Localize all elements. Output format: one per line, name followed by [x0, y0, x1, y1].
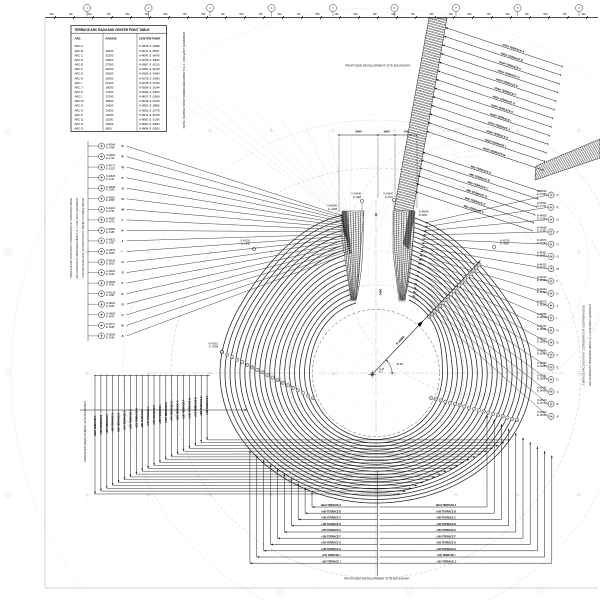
- svg-text:8000: 8000: [106, 127, 113, 131]
- svg-text:E 4098: E 4098: [353, 196, 362, 199]
- svg-text:E: E: [122, 292, 124, 296]
- svg-text:540: 540: [202, 13, 207, 16]
- svg-text:N 43054, E -25144: N 43054, E -25144: [139, 85, 160, 89]
- svg-text:E 17150: E 17150: [537, 242, 547, 245]
- svg-text:700: 700: [259, 13, 264, 16]
- svg-text:15000: 15000: [106, 99, 114, 103]
- svg-text:E -4984: E -4984: [500, 243, 509, 246]
- svg-text:N 43158, E -40468: N 43158, E -40468: [139, 44, 160, 48]
- svg-text:540: 540: [316, 13, 321, 16]
- svg-text:540: 540: [430, 13, 435, 16]
- svg-text:700: 700: [69, 13, 74, 16]
- svg-text:N 41807, E -31210: N 41807, E -31210: [139, 63, 160, 67]
- svg-text:E 14532: E 14532: [537, 414, 547, 417]
- svg-text:N 46051, E -20094: N 46051, E -20094: [139, 122, 160, 126]
- svg-text:700: 700: [373, 13, 378, 16]
- svg-text:B: B: [557, 402, 559, 406]
- svg-text:P: P: [122, 176, 124, 180]
- svg-text:E -5085: E -5085: [106, 326, 115, 329]
- svg-text:+175 TERRACE N: +175 TERRACE N: [171, 401, 174, 421]
- svg-text:ARC I: ARC I: [75, 81, 83, 85]
- svg-text:N 45418, E -21310: N 45418, E -21310: [139, 99, 160, 103]
- svg-text:E -3608: E -3608: [106, 252, 115, 255]
- svg-text:N 42276, E -27830: N 42276, E -27830: [139, 76, 160, 80]
- svg-text:+450 TERRACE C: +450 TERRACE C: [321, 517, 341, 520]
- svg-text:MID TERRACE E: MID TERRACE E: [118, 412, 121, 431]
- svg-text:14000: 14000: [106, 104, 114, 108]
- svg-text:+325 TERRACE H: +325 TERRACE H: [135, 408, 138, 428]
- svg-text:PROPOSED DEVELOPMENT SITE BOUN: PROPOSED DEVELOPMENT SITE BOUNDARY: [83, 401, 87, 462]
- svg-text:E -2498: E -2498: [241, 243, 250, 246]
- svg-text:25000: 25000: [106, 72, 114, 76]
- svg-text:E -2764: E -2764: [106, 210, 115, 213]
- svg-text:+500 TERRACE B: +500 TERRACE B: [321, 511, 341, 514]
- svg-text:N 44617, E -23008: N 44617, E -23008: [139, 95, 160, 99]
- svg-text:540: 540: [354, 13, 359, 16]
- svg-text:N: N: [557, 255, 559, 259]
- svg-text:E -1709: E -1709: [106, 157, 115, 160]
- svg-text:+125 TERRACE P: +125 TERRACE P: [183, 399, 186, 419]
- svg-text:+050 TERRACE S: +050 TERRACE S: [200, 396, 203, 416]
- svg-text:E -3186: E -3186: [106, 231, 115, 234]
- svg-text:HIGH TERRACE A: HIGH TERRACE A: [94, 415, 97, 436]
- svg-text:E -4452: E -4452: [106, 294, 115, 297]
- svg-text:L: L: [122, 218, 124, 222]
- svg-text:ARC H: ARC H: [75, 76, 84, 80]
- svg-text:N: N: [122, 197, 124, 201]
- svg-text:E -3397: E -3397: [106, 241, 115, 244]
- svg-text:700: 700: [487, 13, 492, 16]
- svg-text:E 16028: E 16028: [537, 316, 547, 319]
- svg-text:540: 540: [392, 13, 397, 16]
- svg-text:E -4663: E -4663: [106, 305, 115, 308]
- svg-text:ARC M: ARC M: [75, 99, 85, 103]
- svg-text:N 46694, E -20203: N 46694, E -20203: [139, 127, 160, 131]
- svg-text:S: S: [122, 144, 124, 148]
- svg-text:H: H: [122, 260, 124, 264]
- svg-text:700: 700: [449, 13, 454, 16]
- svg-text:E 2347: E 2347: [385, 196, 394, 199]
- svg-text:ARC Q: ARC Q: [75, 118, 85, 122]
- svg-text:H: H: [557, 328, 559, 332]
- svg-text:N 44047, E -36478: N 44047, E -36478: [139, 53, 160, 57]
- svg-text:E -3819: E -3819: [106, 263, 115, 266]
- svg-text:TERRACE ARC END POINT COORDINA: TERRACE ARC END POINT COORDINATES AT SOU…: [582, 305, 586, 385]
- svg-text:E -2553: E -2553: [106, 199, 115, 202]
- svg-text:1400: 1400: [383, 130, 390, 134]
- svg-text:RADIUS: RADIUS: [106, 37, 117, 41]
- svg-text:F: F: [557, 353, 559, 357]
- svg-text:ARC J: ARC J: [75, 85, 84, 89]
- svg-text:700: 700: [563, 13, 568, 16]
- svg-text:E -9088: E -9088: [209, 346, 218, 349]
- svg-text:+450 TERRACE C: +450 TERRACE C: [106, 414, 109, 434]
- svg-text:A: A: [7, 371, 9, 375]
- svg-text:13000: 13000: [106, 108, 114, 112]
- svg-text:N 45631, E -22778: N 45631, E -22778: [139, 108, 160, 112]
- svg-text:540: 540: [506, 13, 511, 16]
- svg-text:ARC B: ARC B: [75, 49, 84, 53]
- svg-text:TERRACE ARC END POINT COORDINA: TERRACE ARC END POINT COORDINATES AT NOR…: [69, 198, 73, 278]
- svg-text:+400 TERRACE D: +400 TERRACE D: [436, 523, 456, 526]
- svg-text:ARC G: ARC G: [75, 72, 84, 76]
- svg-text:E -5296: E -5296: [106, 336, 115, 339]
- svg-text:ARC C: ARC C: [75, 53, 84, 57]
- svg-text:+150 TERRACE I: +150 TERRACE I: [322, 554, 341, 557]
- svg-text:700: 700: [411, 13, 416, 16]
- svg-text:NOTE: CENTER POINTS MIRRORED A: NOTE: CENTER POINTS MIRRORED ABOUT CL 1,…: [182, 31, 186, 128]
- svg-text:+375 TERRACE F: +375 TERRACE F: [124, 410, 127, 430]
- svg-text:FOR ARC RADII AND CENTER POINT: FOR ARC RADII AND CENTER POINTS, REFER T…: [81, 198, 85, 278]
- svg-text:ARC F: ARC F: [75, 67, 84, 71]
- svg-text:540: 540: [240, 13, 245, 16]
- svg-text:700: 700: [525, 13, 530, 16]
- svg-text:E -2342: E -2342: [106, 189, 115, 192]
- svg-text:27900: 27900: [106, 63, 114, 67]
- svg-text:ARC R: ARC R: [75, 122, 84, 126]
- svg-text:CENTER POINT: CENTER POINT: [139, 37, 161, 41]
- svg-text:A: A: [7, 129, 9, 133]
- svg-text:HIGH TERRACE A: HIGH TERRACE A: [321, 504, 342, 507]
- svg-text:32000: 32000: [106, 49, 114, 53]
- svg-text:N 45821, E -19906: N 45821, E -19906: [139, 104, 160, 108]
- svg-text:ARC O: ARC O: [75, 108, 85, 112]
- svg-text:+200 TERRACE H: +200 TERRACE H: [321, 548, 341, 551]
- svg-text:+450 TERRACE C: +450 TERRACE C: [436, 517, 456, 520]
- svg-text:N 41766, E -34620: N 41766, E -34620: [139, 58, 160, 62]
- svg-text:23000: 23000: [106, 76, 114, 80]
- svg-text:700: 700: [335, 13, 340, 16]
- svg-text:ARC N: ARC N: [75, 104, 84, 108]
- svg-text:ARC: ARC: [75, 37, 82, 41]
- svg-text:E -4030: E -4030: [106, 273, 115, 276]
- svg-text:HIGH TERRACE A: HIGH TERRACE A: [436, 504, 457, 507]
- svg-text:PROPOSED DEVELOPMENT SITE BOUN: PROPOSED DEVELOPMENT SITE BOUNDARY: [345, 64, 411, 68]
- svg-text:F: F: [122, 281, 124, 285]
- svg-text:LOW TERRACE M: LOW TERRACE M: [165, 402, 168, 422]
- svg-text:46.36°: 46.36°: [396, 362, 404, 366]
- svg-text:+225 TERRACE L: +225 TERRACE L: [159, 404, 162, 424]
- svg-text:3400: 3400: [355, 130, 362, 134]
- svg-text:ARC A: ARC A: [75, 44, 84, 48]
- svg-text:MID TERRACE I: MID TERRACE I: [141, 409, 144, 427]
- svg-text:29000: 29000: [106, 58, 114, 62]
- svg-text:+300 TERRACE F: +300 TERRACE F: [321, 536, 341, 539]
- svg-text:540: 540: [164, 13, 169, 16]
- svg-text:+300 TERRACE F: +300 TERRACE F: [436, 536, 456, 539]
- svg-text:E 4089: E 4089: [419, 214, 428, 217]
- svg-text:17000: 17000: [106, 95, 114, 99]
- svg-text:+350 TERRACE G: +350 TERRACE G: [129, 409, 132, 429]
- svg-text:+250 TERRACE G: +250 TERRACE G: [321, 542, 341, 545]
- svg-text:540: 540: [544, 13, 549, 16]
- svg-text:+350 TERRACE E: +350 TERRACE E: [436, 529, 456, 532]
- svg-text:E -4874: E -4874: [106, 315, 115, 318]
- svg-text:E -2975: E -2975: [106, 220, 115, 223]
- svg-text:+150 TERRACE I: +150 TERRACE I: [437, 554, 456, 557]
- svg-text:J: J: [453, 291, 454, 293]
- svg-text:+500 TERRACE B: +500 TERRACE B: [436, 511, 456, 514]
- svg-text:E 15467: E 15467: [537, 353, 547, 356]
- svg-text:21300: 21300: [106, 81, 114, 85]
- svg-text:P: P: [557, 230, 559, 234]
- svg-text:ARC E: ARC E: [75, 63, 84, 67]
- svg-text:700: 700: [221, 13, 226, 16]
- svg-text:E 15654: E 15654: [537, 340, 547, 343]
- svg-text:N 42376, E -27020: N 42376, E -27020: [139, 81, 160, 85]
- svg-text:+150 TERRACE O: +150 TERRACE O: [177, 400, 180, 420]
- svg-text:ARC ENDPOINTS MIRRORED ABOUT C: ARC ENDPOINTS MIRRORED ABOUT CL 1, FOR W…: [588, 304, 592, 387]
- svg-text:540: 540: [50, 13, 55, 16]
- svg-text:PROPOSED DEVELOPMENT SITE BOUN: PROPOSED DEVELOPMENT SITE BOUNDARY: [344, 577, 410, 581]
- svg-text:10000: 10000: [106, 122, 114, 126]
- svg-text:540: 540: [278, 13, 283, 16]
- svg-text:J: J: [474, 409, 475, 411]
- svg-text:N 42006, E -29464: N 42006, E -29464: [139, 72, 160, 76]
- svg-text:N 44094, E -24570: N 44094, E -24570: [139, 90, 160, 94]
- svg-text:N 46131, E -23178: N 46131, E -23178: [139, 113, 160, 117]
- svg-text:+275 TERRACE J: +275 TERRACE J: [147, 406, 150, 426]
- svg-text:E -1920: E -1920: [106, 168, 115, 171]
- svg-text:700: 700: [107, 13, 112, 16]
- svg-text:540: 540: [582, 13, 587, 16]
- svg-text:N 43717, E -38117: N 43717, E -38117: [139, 49, 160, 53]
- svg-text:E 15841: E 15841: [537, 328, 547, 331]
- svg-text:N 46067, E -21306: N 46067, E -21306: [139, 118, 160, 122]
- svg-text:19000: 19000: [106, 85, 114, 89]
- svg-text:+025 TERRACE T: +025 TERRACE T: [206, 395, 209, 415]
- svg-text:ARC S: ARC S: [75, 127, 84, 131]
- svg-text:17900: 17900: [106, 90, 114, 94]
- svg-text:12000: 12000: [106, 113, 114, 117]
- svg-text:11000: 11000: [106, 118, 114, 122]
- svg-text:LOW TERRACE Q: LOW TERRACE Q: [188, 398, 191, 418]
- svg-text:ARC L: ARC L: [75, 95, 84, 99]
- svg-text:E -2498: E -2498: [328, 208, 337, 211]
- svg-text:+250 TERRACE G: +250 TERRACE G: [436, 542, 456, 545]
- svg-text:700: 700: [297, 13, 302, 16]
- svg-text:ARC P: ARC P: [75, 113, 84, 117]
- svg-text:E -2131: E -2131: [106, 178, 115, 181]
- svg-text:N 41681, E -31218: N 41681, E -31218: [139, 67, 160, 71]
- svg-text:ARC D: ARC D: [75, 58, 84, 62]
- svg-text:3400: 3400: [379, 288, 383, 295]
- svg-text:540: 540: [468, 13, 473, 16]
- svg-text:E -1498: E -1498: [106, 147, 115, 150]
- svg-text:J: J: [267, 375, 268, 377]
- svg-text:700: 700: [404, 130, 409, 134]
- svg-text:+500 TERRACE B: +500 TERRACE B: [100, 415, 103, 435]
- svg-text:E -4241: E -4241: [106, 284, 115, 287]
- svg-text:K: K: [557, 292, 559, 296]
- svg-text:+350 TERRACE E: +350 TERRACE E: [321, 529, 341, 532]
- svg-text:31300: 31300: [106, 53, 114, 57]
- svg-text:700: 700: [183, 13, 188, 16]
- svg-text:A: A: [7, 492, 9, 496]
- svg-text:+425 TERRACE D: +425 TERRACE D: [112, 412, 115, 432]
- svg-text:ARC ENDPOINTS MIRRORED ABOUT C: ARC ENDPOINTS MIRRORED ABOUT CL 1, FOR E…: [75, 197, 79, 279]
- svg-text:+250 TERRACE K: +250 TERRACE K: [153, 405, 156, 425]
- svg-text:+200 TERRACE H: +200 TERRACE H: [436, 548, 456, 551]
- svg-text:ARC K: ARC K: [75, 90, 84, 94]
- svg-text:540: 540: [126, 13, 131, 16]
- svg-text:TERRACE ARC RADII AND CENTER P: TERRACE ARC RADII AND CENTER POINT TABLE: [75, 28, 150, 32]
- svg-text:+100 TERRACE J: +100 TERRACE J: [436, 561, 456, 564]
- svg-text:+400 TERRACE D: +400 TERRACE D: [321, 523, 341, 526]
- svg-text:E: E: [557, 365, 559, 369]
- svg-text:+100 TERRACE J: +100 TERRACE J: [321, 561, 341, 564]
- svg-text:+075 TERRACE R: +075 TERRACE R: [194, 397, 197, 417]
- svg-text:540: 540: [88, 13, 93, 16]
- svg-text:N 45: N 45: [379, 369, 385, 371]
- svg-text:A: A: [557, 415, 559, 419]
- svg-text:S: S: [557, 193, 559, 197]
- svg-text:26000: 26000: [106, 67, 114, 71]
- svg-text:A: A: [7, 250, 9, 254]
